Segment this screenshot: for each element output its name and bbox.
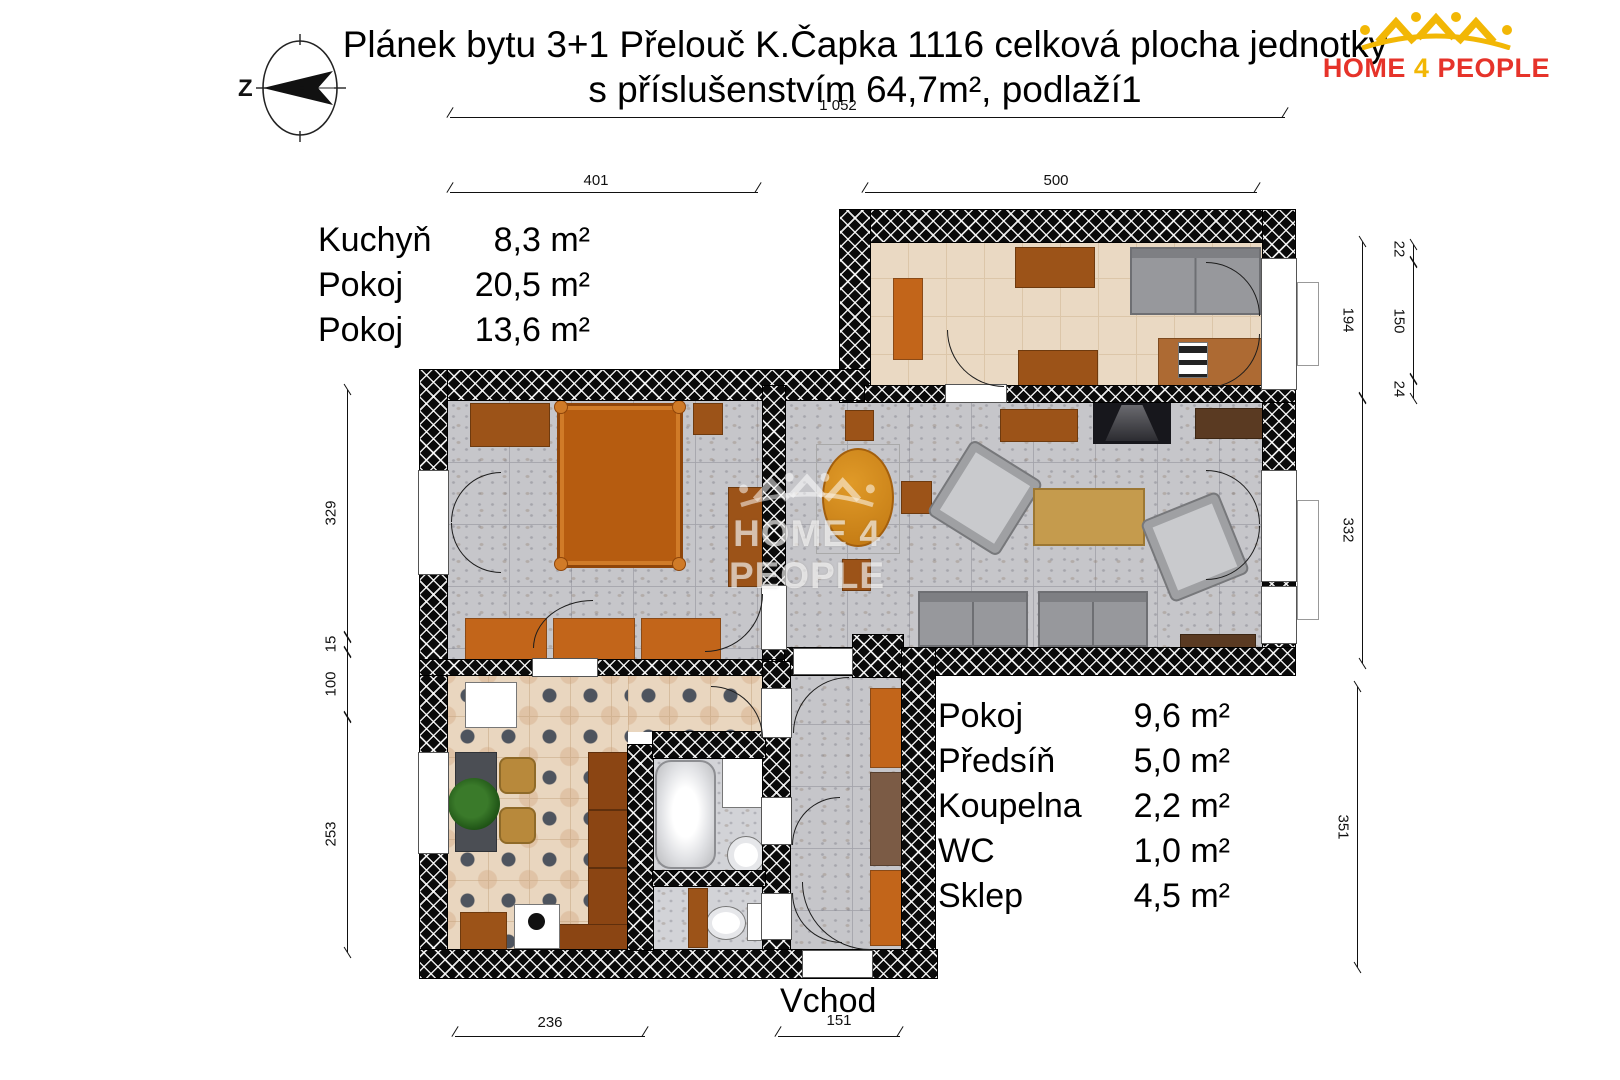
room-name: Předsíň (938, 742, 1055, 781)
dim-label: 24 (1391, 381, 1408, 398)
dining-chair (901, 481, 932, 514)
room-row: Koupelna 2,2 m² (938, 784, 1230, 829)
sofa (1038, 591, 1148, 647)
dim-line (455, 1036, 645, 1037)
dim-line (1357, 687, 1358, 967)
dim-label: 100 (323, 671, 340, 696)
room-list-left: Kuchyň 8,3 m² Pokoj 20,5 m² Pokoj 13,6 m… (318, 218, 590, 353)
dining-chair (845, 410, 874, 441)
dim-line (1362, 242, 1363, 398)
dresser (470, 403, 550, 447)
dining-chair (842, 559, 871, 591)
desk (728, 487, 763, 587)
dim-line (1413, 262, 1414, 379)
page-title: Plánek bytu 3+1 Přelouč K.Čapka 1116 cel… (295, 22, 1435, 112)
door-leaf (761, 585, 787, 650)
wall-room96-living (865, 386, 1295, 402)
bed-post (672, 400, 686, 414)
bed-post (554, 557, 568, 571)
bed-post (554, 400, 568, 414)
door-opening (761, 797, 792, 845)
balcony-door (1261, 258, 1297, 390)
room-area: 2,2 m² (1134, 787, 1230, 826)
dim-label: 332 (1340, 517, 1357, 542)
room-name: Koupelna (938, 787, 1082, 826)
room-name: Sklep (938, 877, 1023, 916)
door-opening (945, 384, 1007, 403)
stove-burner (528, 913, 545, 930)
room-row: WC 1,0 m² (938, 829, 1230, 874)
room-row: Sklep 4,5 m² (938, 874, 1230, 919)
door-opening (761, 893, 792, 940)
dim-label: 329 (323, 500, 340, 525)
door-opening (761, 688, 792, 738)
wall-top-left (420, 370, 870, 400)
dim-line (450, 192, 758, 193)
bed-post (672, 557, 686, 571)
title-line1: Plánek bytu 3+1 Přelouč K.Čapka 1116 cel… (295, 22, 1435, 67)
cabinet (893, 278, 923, 360)
dim-label: 194 (1340, 307, 1357, 332)
wall-bath-wc (653, 871, 765, 886)
table (1015, 247, 1095, 288)
compass-west-label: Z (238, 75, 253, 102)
window (418, 470, 449, 575)
bathtub (655, 760, 716, 869)
sofa (918, 591, 1028, 647)
tv-stand (1000, 409, 1078, 442)
coffee-table (1033, 488, 1145, 546)
washbasin-counter (722, 758, 763, 808)
bed (557, 403, 683, 568)
dim-line (1413, 379, 1414, 398)
stove-appliance (1178, 342, 1208, 378)
dim-line (347, 717, 348, 952)
sink (727, 836, 765, 874)
dim-label: 15 (323, 636, 340, 653)
brand-logo: HOME 4 PEOPLE (1323, 8, 1550, 81)
title-line2: s příslušenstvím 64,7m², podlaží1 (295, 67, 1435, 112)
door-opening (532, 658, 598, 677)
door-opening (793, 648, 853, 675)
dim-label: 351 (1335, 814, 1352, 839)
plant (448, 778, 500, 830)
window (418, 752, 449, 854)
window (1261, 586, 1297, 644)
room-list-right: Pokoj 9,6 m² Předsíň 5,0 m² Koupelna 2,2… (938, 694, 1230, 919)
tv-screen (1103, 405, 1161, 441)
wall-kitchen-bath (628, 745, 653, 950)
wall-bedroom-kitchen (420, 660, 785, 675)
toilet-bowl (706, 906, 746, 940)
dim-line (778, 1036, 900, 1037)
logo-word-4: 4 (1414, 53, 1430, 83)
fridge (465, 682, 517, 728)
room-area: 9,6 m² (1134, 697, 1230, 736)
dim-line (347, 652, 348, 717)
room-area: 20,5 m² (475, 266, 590, 305)
logo-word-people: PEOPLE (1437, 53, 1550, 83)
dim-label: 22 (1391, 241, 1408, 258)
room-area: 8,3 m² (494, 221, 590, 260)
room-name: Kuchyň (318, 221, 431, 260)
dim-line (1362, 398, 1363, 663)
dim-label: 150 (1391, 308, 1408, 333)
kitchen-counter (547, 924, 640, 950)
room-name: Pokoj (938, 697, 1023, 736)
room-area: 5,0 m² (1134, 742, 1230, 781)
room-row: Pokoj 20,5 m² (318, 263, 590, 308)
room-name: Pokoj (318, 266, 403, 305)
hall-cabinet (870, 772, 902, 866)
room-area: 1,0 m² (1134, 832, 1230, 871)
dim-line (865, 192, 1257, 193)
dining-table (822, 448, 894, 547)
logo-crown-icon (1352, 8, 1520, 50)
kitchen-chair (499, 757, 536, 794)
dim-label: 401 (583, 172, 608, 189)
room-name: WC (938, 832, 995, 871)
room-row: Předsíň 5,0 m² (938, 739, 1230, 784)
window-sill (1297, 282, 1319, 366)
wc-door-leaf (688, 888, 708, 948)
room-area: 4,5 m² (1134, 877, 1230, 916)
wall-hall-right (902, 648, 935, 978)
window-sill (1297, 500, 1319, 620)
logo-word-home: HOME (1323, 53, 1406, 83)
dim-label: 253 (323, 821, 340, 846)
balcony-door (1261, 470, 1297, 582)
hall-cabinet (870, 688, 902, 768)
room-row: Pokoj 13,6 m² (318, 308, 590, 353)
wall-stub (853, 635, 903, 677)
room-name: Pokoj (318, 311, 403, 350)
entrance-door (802, 950, 873, 978)
dim-line (347, 390, 348, 637)
sideboard (1195, 408, 1265, 439)
nightstand (693, 403, 723, 435)
room-row: Kuchyň 8,3 m² (318, 218, 590, 263)
entrance-label: Vchod (780, 982, 876, 1021)
kitchen-counter (588, 752, 630, 927)
cabinet (460, 912, 507, 950)
tv (1093, 402, 1171, 444)
wall-top-right (840, 210, 1295, 242)
kitchen-chair (499, 807, 536, 844)
stove (514, 904, 560, 949)
room-row: Pokoj 9,6 m² (938, 694, 1230, 739)
dim-label: 500 (1043, 172, 1068, 189)
logo-text: HOME 4 PEOPLE (1323, 55, 1550, 81)
hall-cabinet (870, 870, 902, 946)
dim-label: 236 (537, 1014, 562, 1031)
room-area: 13,6 m² (475, 311, 590, 350)
dim-line-total (450, 117, 1285, 118)
